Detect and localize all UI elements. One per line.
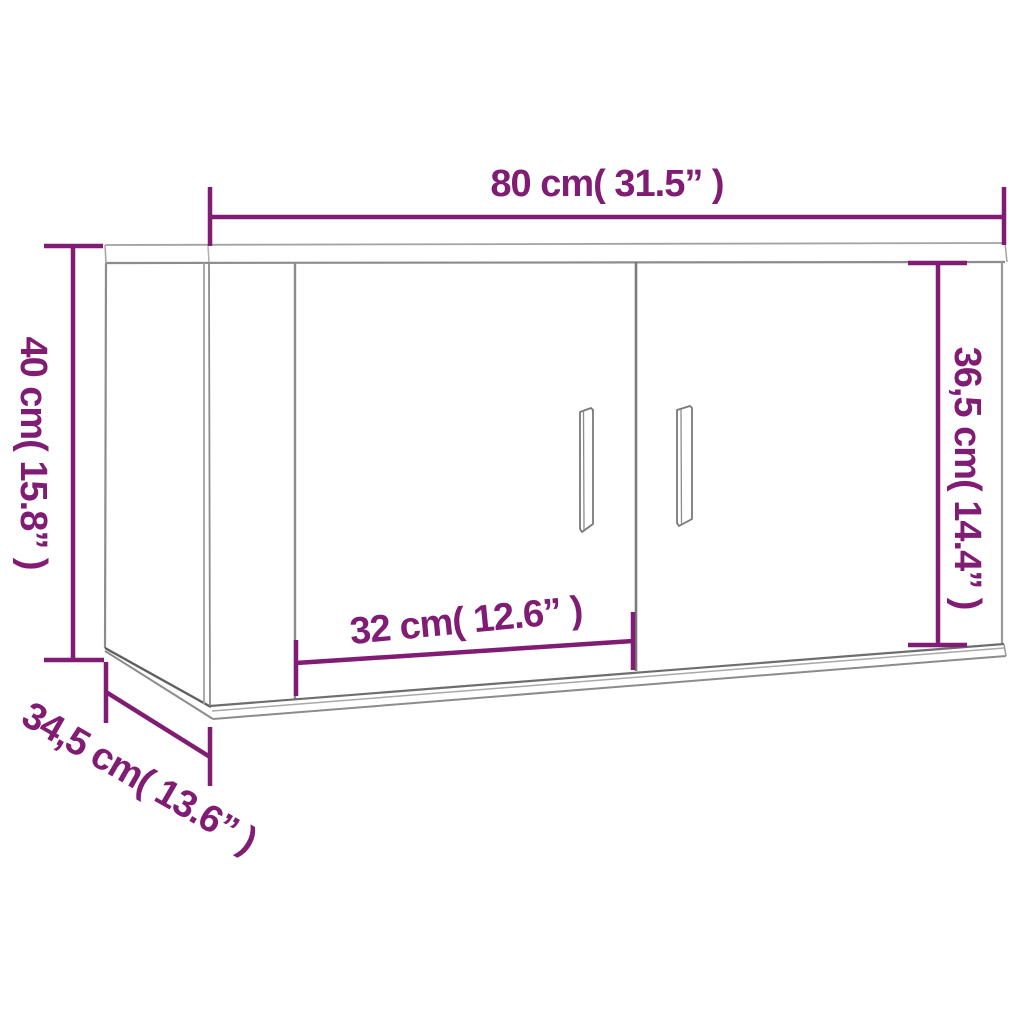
front-left-corner-inner-line: [209, 263, 210, 706]
dimension-annotations: 80 cm( 31.5” ) 40 cm( 15.8” ) 36,5 cm( 1…: [12, 163, 1004, 862]
bottom-panel-right-cap: [1004, 644, 1006, 656]
dimension-diagram-canvas: 80 cm( 31.5” ) 40 cm( 15.8” ) 36,5 cm( 1…: [0, 0, 1024, 1024]
height-dimension-label: 40 cm( 15.8” ): [12, 336, 54, 569]
inner-height-dimension-label: 36,5 cm( 14.4” ): [946, 347, 988, 610]
door-width-dimension-line: [296, 641, 633, 663]
cabinet-left-side-panel: [105, 263, 213, 719]
left-handle-body: [580, 408, 593, 532]
top-panel-left-cap: [105, 245, 106, 263]
bottom-panel-bottom-edge: [213, 656, 1006, 719]
top-panel-corner-line: [208, 246, 209, 262]
dim-overall-height: 40 cm( 15.8” ): [12, 246, 104, 660]
top-panel-right-cap: [1005, 243, 1007, 262]
dim-overall-width: 80 cm( 31.5” ): [210, 163, 1004, 246]
width-dimension-label: 80 cm( 31.5” ): [490, 163, 723, 205]
left-door-handle: [580, 408, 593, 532]
cabinet-top-panel: [105, 243, 1007, 263]
bottom-panel-top-edge: [210, 644, 1004, 706]
cabinet-bottom-panel: [210, 644, 1006, 719]
side-panel-bottom-upper-edge: [105, 648, 211, 707]
side-panel-left-edge: [105, 263, 106, 648]
left-handle-inner-line: [584, 411, 585, 530]
dim-door-width: 32 cm( 12.6” ): [296, 589, 633, 696]
cabinet-front-face: [204, 262, 1002, 706]
door-width-dimension-label: 32 cm( 12.6” ): [348, 589, 584, 653]
right-handle-body: [677, 406, 692, 526]
right-door-handle: [677, 406, 692, 526]
top-panel-top-edge: [105, 243, 1005, 245]
cabinet-dimension-diagram: 80 cm( 31.5” ) 40 cm( 15.8” ) 36,5 cm( 1…: [0, 0, 1024, 1024]
depth-dimension-label: 34,5 cm( 13.6” ): [15, 694, 264, 862]
dim-depth: 34,5 cm( 13.6” ): [15, 662, 264, 862]
bottom-panel-inner-line: [212, 648, 1004, 711]
dim-inner-height: 36,5 cm( 14.4” ): [908, 263, 988, 645]
right-handle-inner-line: [681, 409, 682, 524]
side-panel-bottom-lower-edge: [105, 651, 213, 719]
top-panel-bottom-edge: [106, 262, 1005, 263]
